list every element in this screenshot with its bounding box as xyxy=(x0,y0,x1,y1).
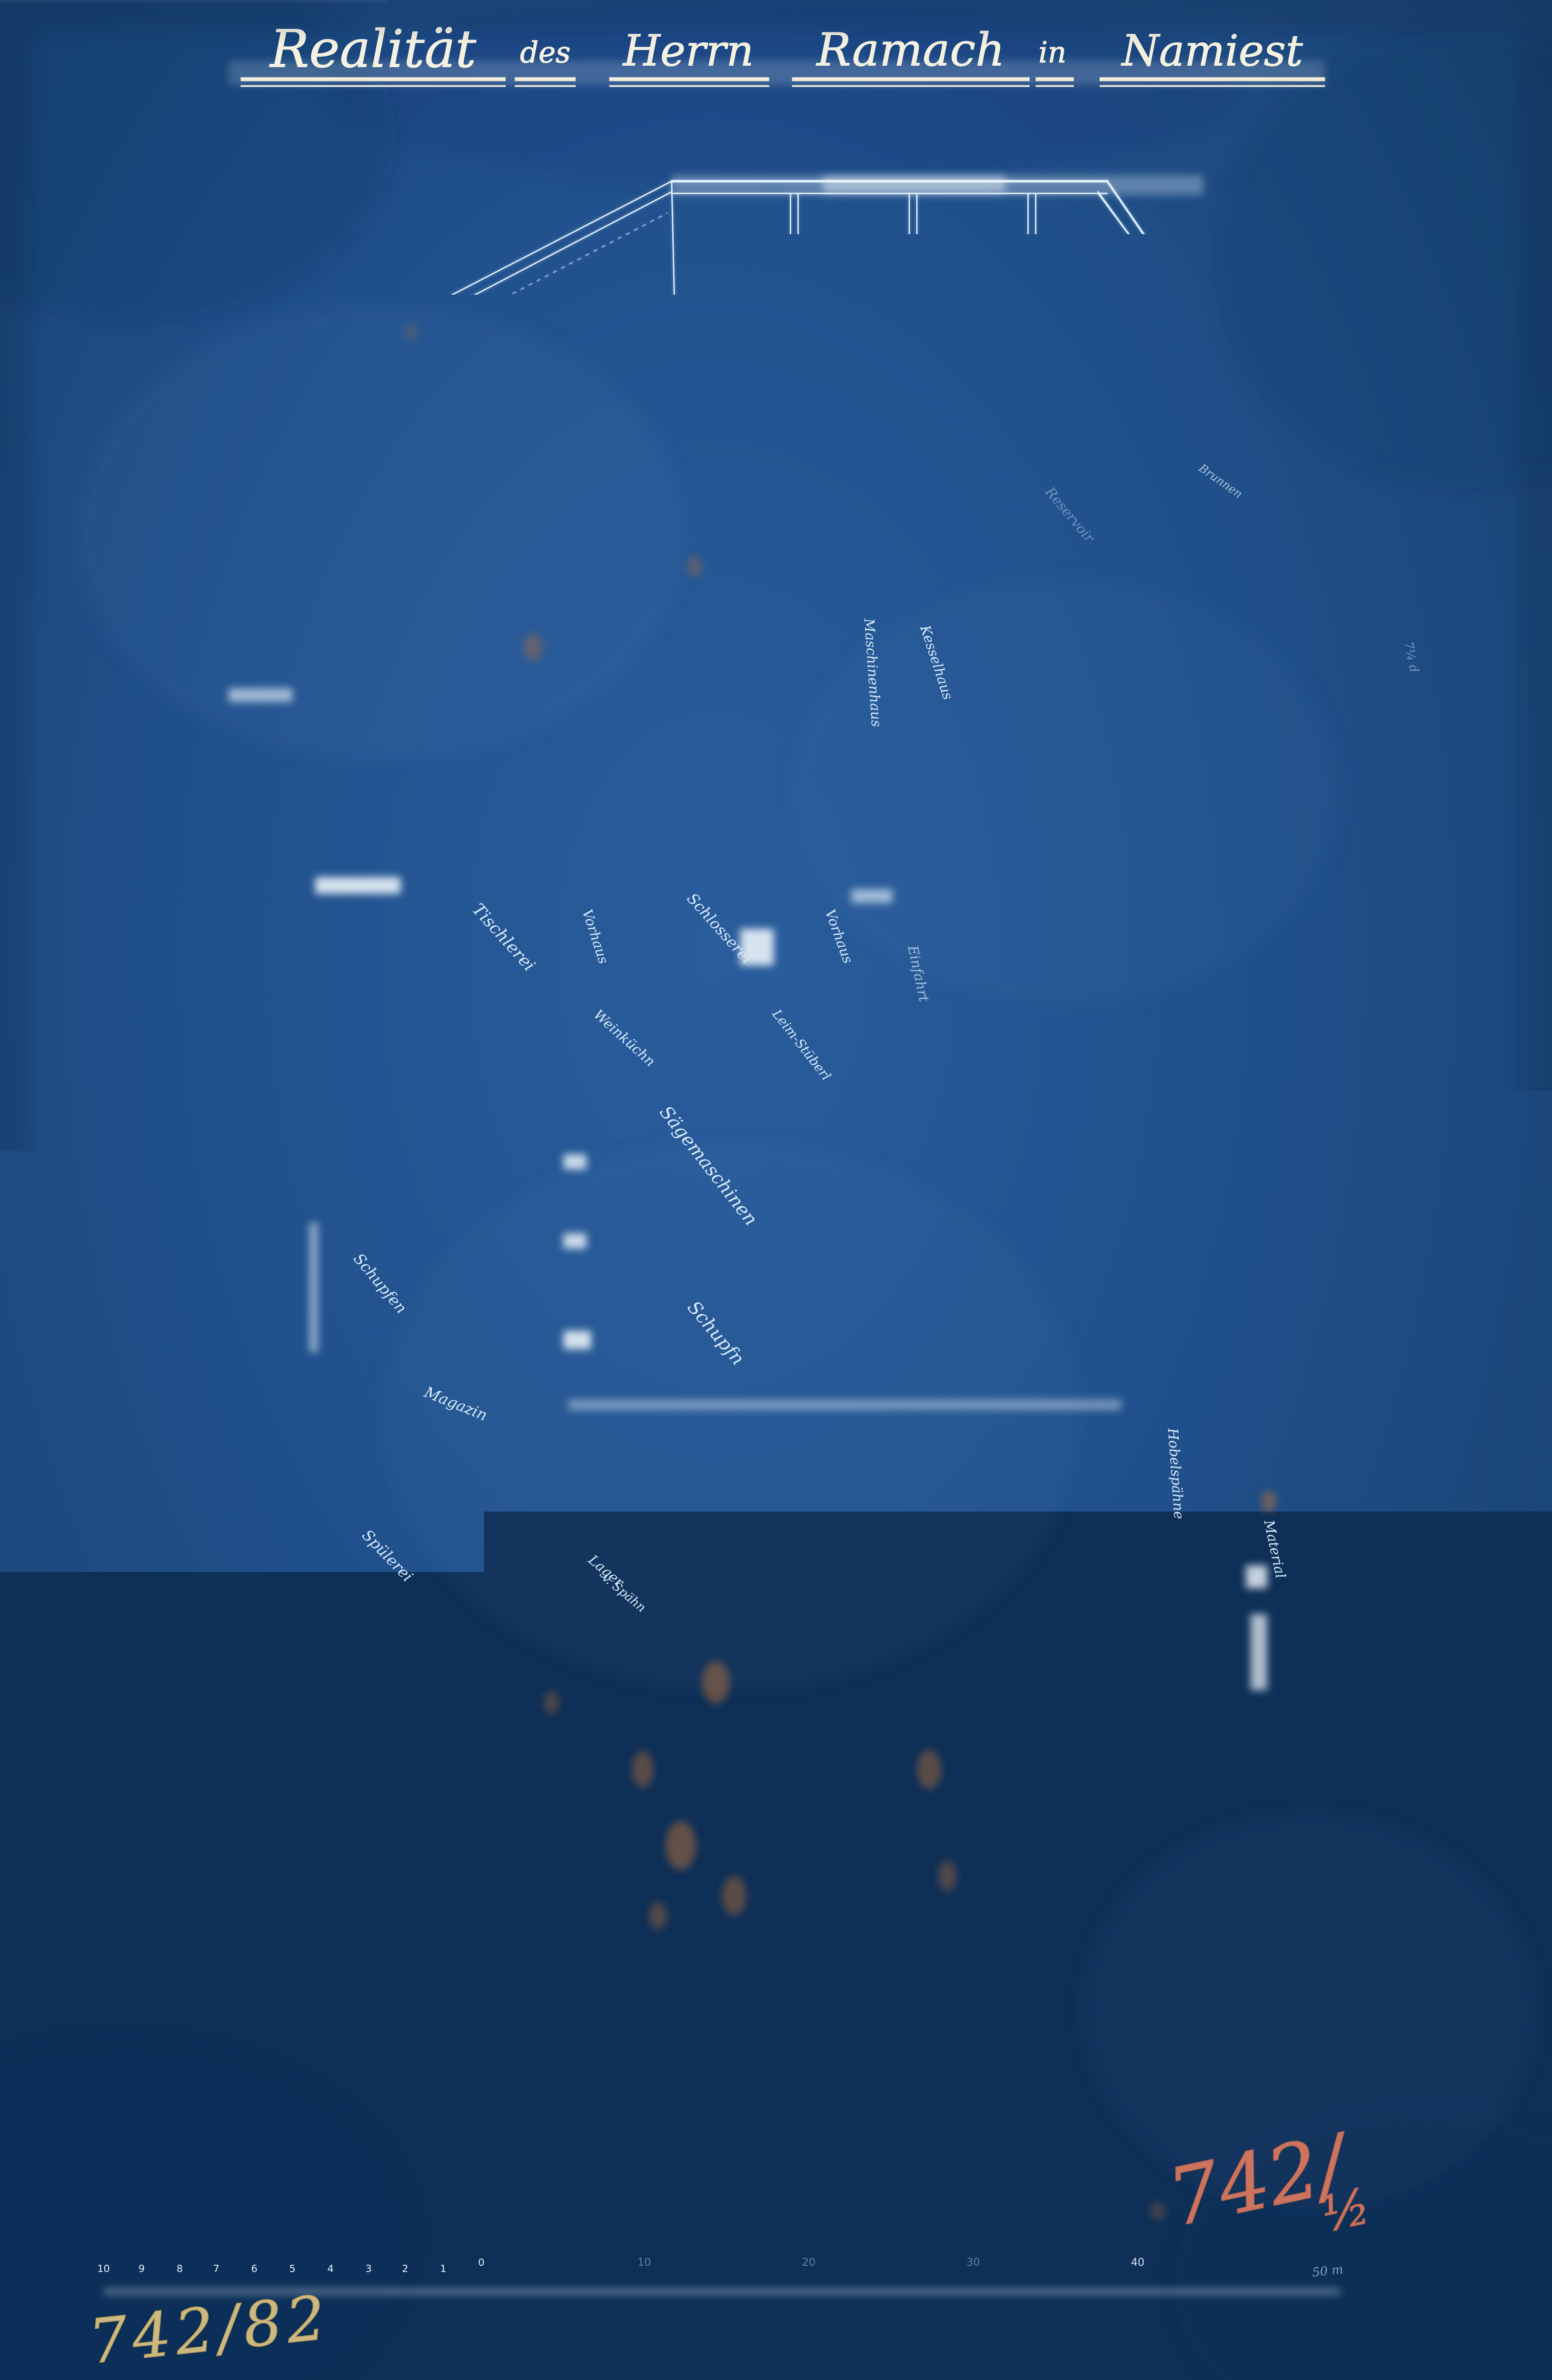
scale-minor-3: 3 xyxy=(366,2263,372,2274)
blueprint-canvas: Realität des Herrn Ramach in Namiest Tis… xyxy=(0,0,1552,2380)
scale-major-20: 20 xyxy=(802,2256,816,2269)
scale-major-30: 30 xyxy=(966,2256,980,2269)
scale-minor-0: 0 xyxy=(478,2257,484,2268)
scale-minor-4: 4 xyxy=(328,2263,334,2274)
scale-minor-10: 10 xyxy=(97,2263,109,2274)
paper-grain xyxy=(0,0,1552,2380)
title-word-6: Namiest xyxy=(1121,27,1303,76)
scale-minor-1: 1 xyxy=(440,2263,446,2274)
scale-minor-5: 5 xyxy=(289,2263,296,2274)
title-word-5: in xyxy=(1038,36,1066,69)
scale-major-40: 40 xyxy=(1131,2256,1144,2269)
blueprint-sheet: Realität des Herrn Ramach in Namiest Tis… xyxy=(0,0,1552,2380)
scale-minor-9: 9 xyxy=(139,2263,145,2274)
title-word-4: Ramach xyxy=(816,23,1005,77)
title-word-2: des xyxy=(520,36,570,69)
scale-minor-2: 2 xyxy=(402,2263,408,2274)
scale-major-10: 10 xyxy=(637,2256,651,2269)
scale-minor-6: 6 xyxy=(251,2263,258,2274)
scale-minor-7: 7 xyxy=(213,2263,219,2274)
scale-minor-8: 8 xyxy=(177,2263,183,2274)
title-word-3: Herrn xyxy=(622,27,754,76)
